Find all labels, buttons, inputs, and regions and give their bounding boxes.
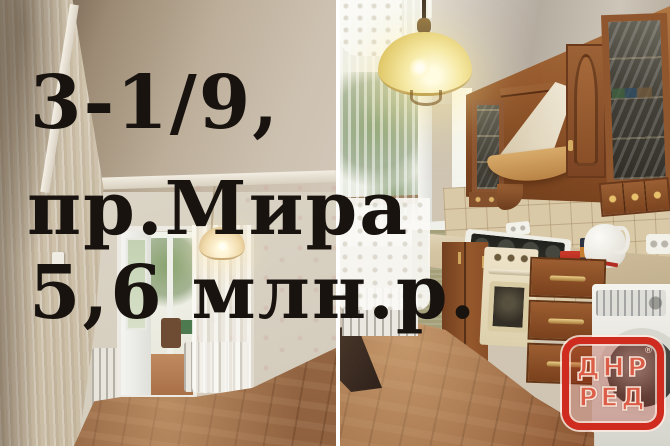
spice-drawers bbox=[469, 192, 499, 207]
spice-drawers bbox=[599, 177, 670, 217]
oven-window bbox=[487, 281, 530, 333]
listing-price-text: 5,6 млн.р. bbox=[29, 256, 477, 330]
lamp-metal-loop bbox=[410, 90, 442, 106]
power-outlet bbox=[646, 234, 670, 254]
glass-display-cabinet bbox=[601, 13, 670, 187]
lamp-bulb-glow bbox=[410, 58, 430, 78]
registered-mark-icon: ® bbox=[644, 346, 653, 356]
arched-cabinet-door bbox=[566, 44, 606, 178]
watermark-line-2: РЕД bbox=[579, 384, 648, 413]
oven-knobs bbox=[492, 253, 530, 263]
oven-handle bbox=[488, 269, 532, 276]
washer-control-panel bbox=[596, 290, 666, 316]
agency-watermark: ДНР РЕД ® bbox=[562, 337, 664, 430]
watermark-line-1: ДНР bbox=[577, 354, 650, 383]
kettle-handle bbox=[614, 226, 630, 254]
glass-cabinet-door bbox=[472, 100, 504, 194]
listing-address-text: пр.Мира bbox=[27, 172, 409, 246]
listing-rooms-floor-text: 3-1/9, bbox=[30, 66, 280, 140]
listing-photo-collage: 3-1/9, пр.Мира 5,6 млн.р. ДНР РЕД ® bbox=[0, 0, 670, 446]
cabinet-handle bbox=[568, 140, 573, 151]
door-arch-panel bbox=[574, 54, 598, 166]
cabinet-contents bbox=[612, 87, 652, 98]
